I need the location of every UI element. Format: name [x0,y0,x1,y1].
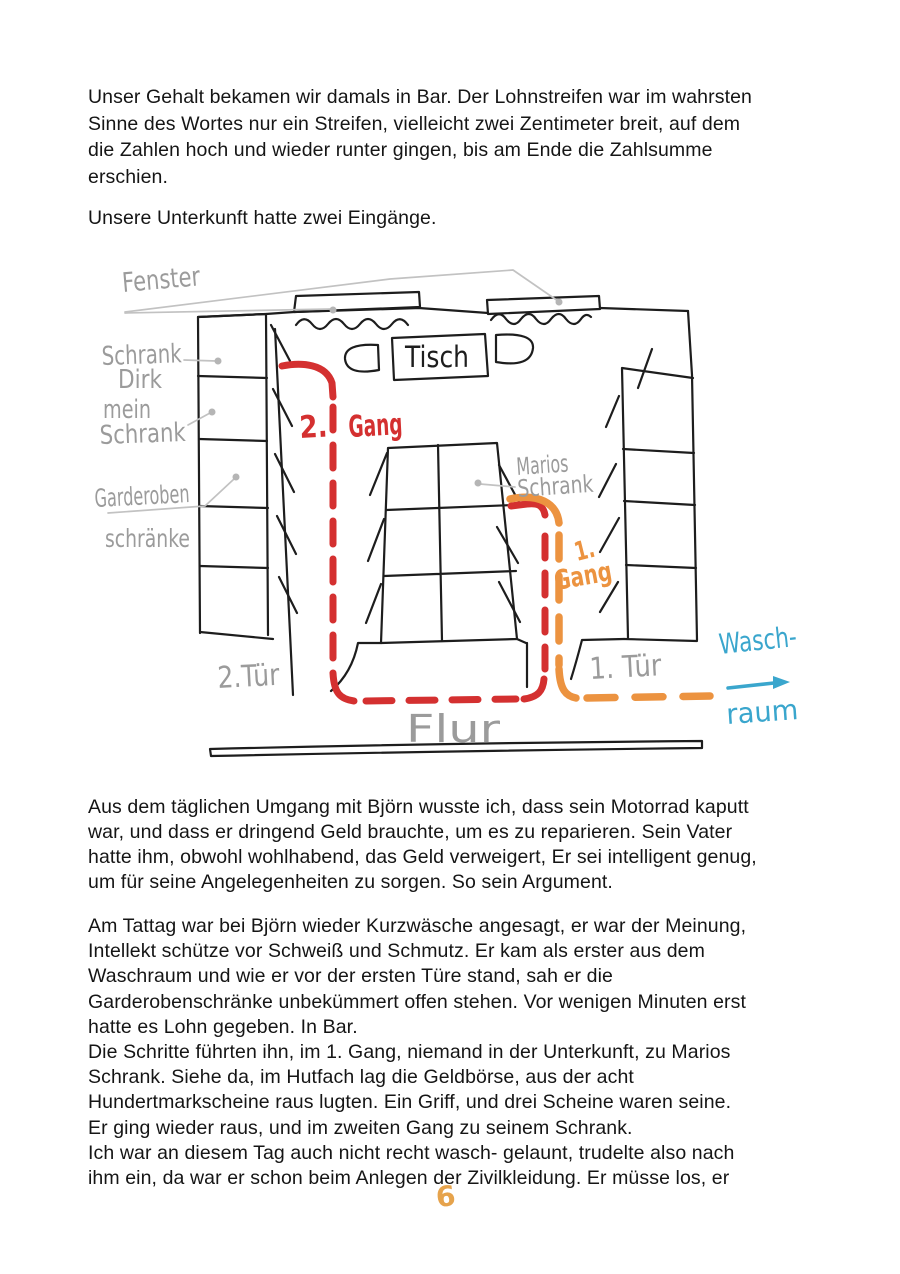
door-2-opening [331,643,381,691]
label-waschraum-2: raum [725,693,799,731]
label-tuer1: 1. Tür [589,648,663,687]
locker-block-middle [366,443,520,643]
label-schrank-dirk-2: Dirk [118,365,162,395]
door-1-left-jamb [517,639,527,687]
floorplan-diagram: Tisch [90,255,820,775]
label-flur: Flur [406,707,500,751]
label-garderoben-1: Garderoben [94,479,190,513]
paragraph-gehalt: Unser Gehalt bekamen wir damals in Bar. … [88,84,848,190]
paragraph-unterkunft: Unsere Unterkunft hatte zwei Eingänge. [88,205,848,232]
label-tuer2: 2.Tür [217,658,281,696]
radiator-squiggle-1 [296,319,408,329]
label-marios-2: Schrank [516,470,594,503]
marios-dot [475,480,482,487]
page-number: 6 [434,1179,457,1214]
chair-right [496,335,533,364]
fenster-dot-2 [556,299,563,306]
mein-schrank-dot [209,409,216,416]
room-right-wall [688,311,697,640]
table-label: Tisch [404,340,469,374]
fenster-dot-1 [330,307,337,314]
label-gang2-word: Gang [348,407,404,445]
label-mein-schrank-2: Schrank [99,418,186,451]
locker-column-right [599,349,697,641]
window-2 [487,296,600,314]
label-gang1-word: Gang [552,556,615,597]
radiator-squiggle-2 [491,314,591,324]
floorplan-sketch: Tisch [90,255,820,775]
chair-left [345,345,379,372]
label-gang2-num: 2. [299,409,329,446]
schrank-dirk-pointer [184,360,216,361]
waschraum-arrow-icon [728,676,790,689]
label-waschraum-1: Wasch- [717,620,798,661]
paragraph-bjoern: Aus dem täglichen Umgang mit Björn wusst… [88,795,848,895]
paragraph-tattag: Am Tattag war bei Björn wieder Kurzwäsch… [88,914,848,1191]
document-page: Unser Gehalt bekamen wir damals in Bar. … [0,0,900,1274]
garderoben-dot [233,474,240,481]
locker-column-left [198,314,297,695]
label-garderoben-2: schränke [105,524,190,553]
locker-doors-middle [366,453,520,623]
schrank-dirk-dot [215,358,222,365]
label-fenster: Fenster [121,261,202,299]
